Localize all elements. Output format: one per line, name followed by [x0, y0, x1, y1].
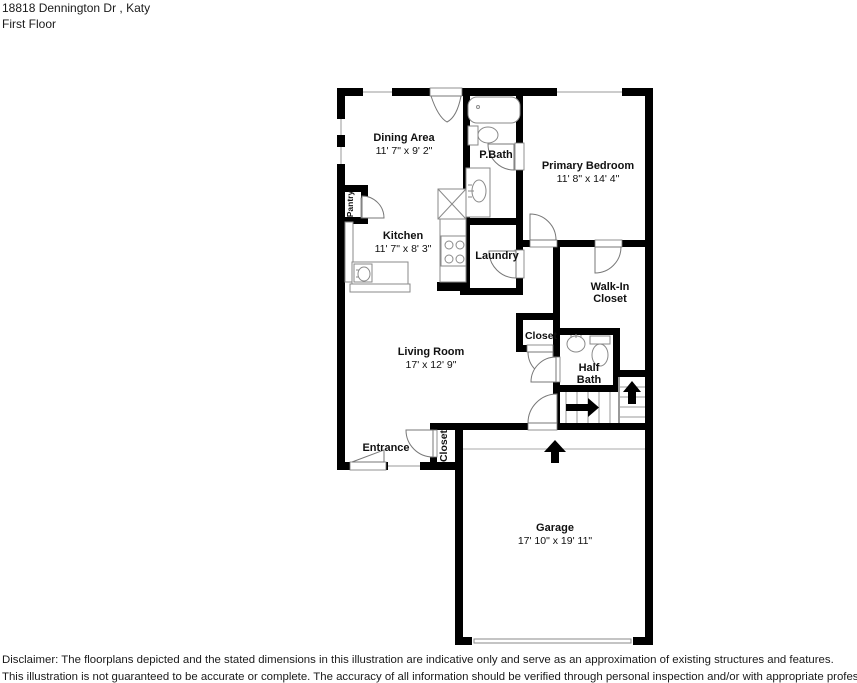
label-living-name: Living Room — [398, 346, 465, 358]
label-primary-dims: 11' 8" x 14' 4" — [557, 173, 620, 185]
garage-marks — [463, 440, 645, 463]
label-hall-closet: Closet — [525, 330, 558, 342]
label-halfbath-line1: Half — [579, 362, 600, 374]
label-dining-dims: 11' 7" x 9' 2" — [376, 145, 433, 157]
label-entrance: Entrance — [362, 442, 409, 454]
wall-right — [645, 88, 653, 645]
disclaimer-line2: This illustration is not guaranteed to b… — [2, 669, 857, 683]
label-primary-name: Primary Bedroom — [542, 160, 635, 172]
label-garage-dims: 17' 10" x 19' 11" — [518, 535, 593, 547]
label-halfbath-line2: Bath — [577, 374, 602, 386]
garage-entry-opening — [528, 423, 557, 430]
wall-kitchen-stub — [437, 282, 470, 291]
label-dining-name: Dining Area — [373, 132, 435, 144]
pbath-toilet-bowl — [478, 127, 498, 143]
label-walkin-line1: Walk-In — [591, 281, 630, 293]
pbath-door-leaf — [515, 143, 524, 170]
kitchen-island-ledge — [350, 284, 410, 292]
stairs-right-arrow — [566, 398, 599, 417]
walkin-door-opening — [595, 240, 622, 247]
garage-up-arrow — [544, 440, 566, 463]
label-garage-name: Garage — [536, 522, 574, 534]
island-sink — [358, 267, 370, 281]
disclaimer: Disclaimer: The floorplans depicted and … — [2, 652, 857, 683]
label-pbath: P.Bath — [479, 149, 513, 161]
pbath-toilet-tank — [468, 126, 478, 145]
disclaimer-line1: Disclaimer: The floorplans depicted and … — [2, 652, 857, 669]
label-kitchen-name: Kitchen — [383, 230, 424, 242]
bedroom-door-opening — [530, 240, 557, 247]
wall-halfbath-bottom — [553, 385, 620, 392]
label-walkin-line2: Closet — [593, 293, 627, 305]
floor-plan-svg: Dining Area 11' 7" x 9' 2" P.Bath Primar… — [0, 0, 857, 683]
front-door-opening — [350, 462, 386, 470]
dining-door-swing — [431, 96, 461, 122]
dining-door-opening — [430, 88, 462, 96]
halfbath-sink — [567, 336, 585, 352]
wall-walkin-bottom — [613, 370, 652, 377]
bathtub — [468, 97, 520, 123]
pantry-door-swing — [362, 196, 384, 218]
label-kitchen-dims: 11' 7" x 8' 3" — [375, 243, 432, 255]
floorplan-page: 18818 Dennington Dr , Katy First Floor — [0, 0, 857, 683]
label-laundry: Laundry — [475, 250, 519, 262]
bathtub-drain — [477, 106, 480, 109]
wall-pbath-bottom — [463, 218, 523, 225]
walkin-door-swing — [595, 247, 621, 273]
wall-garage-left — [455, 425, 463, 645]
wall-left — [337, 88, 345, 470]
bedroom-door-swing — [530, 214, 556, 240]
label-pantry: Pantry — [345, 191, 355, 218]
stairs-up-arrow — [623, 381, 641, 404]
label-entry-closet: Closet — [438, 429, 450, 462]
garage-entry-door-swing — [528, 394, 557, 423]
halfbath-toilet-tank — [590, 336, 610, 344]
pbath-sink — [472, 180, 486, 202]
hall-closet-door-opening — [527, 345, 553, 352]
entry-closet-door-swing — [406, 430, 433, 457]
wall-halfbath-top — [553, 328, 620, 335]
label-living-dims: 17' x 12' 9" — [406, 359, 457, 371]
